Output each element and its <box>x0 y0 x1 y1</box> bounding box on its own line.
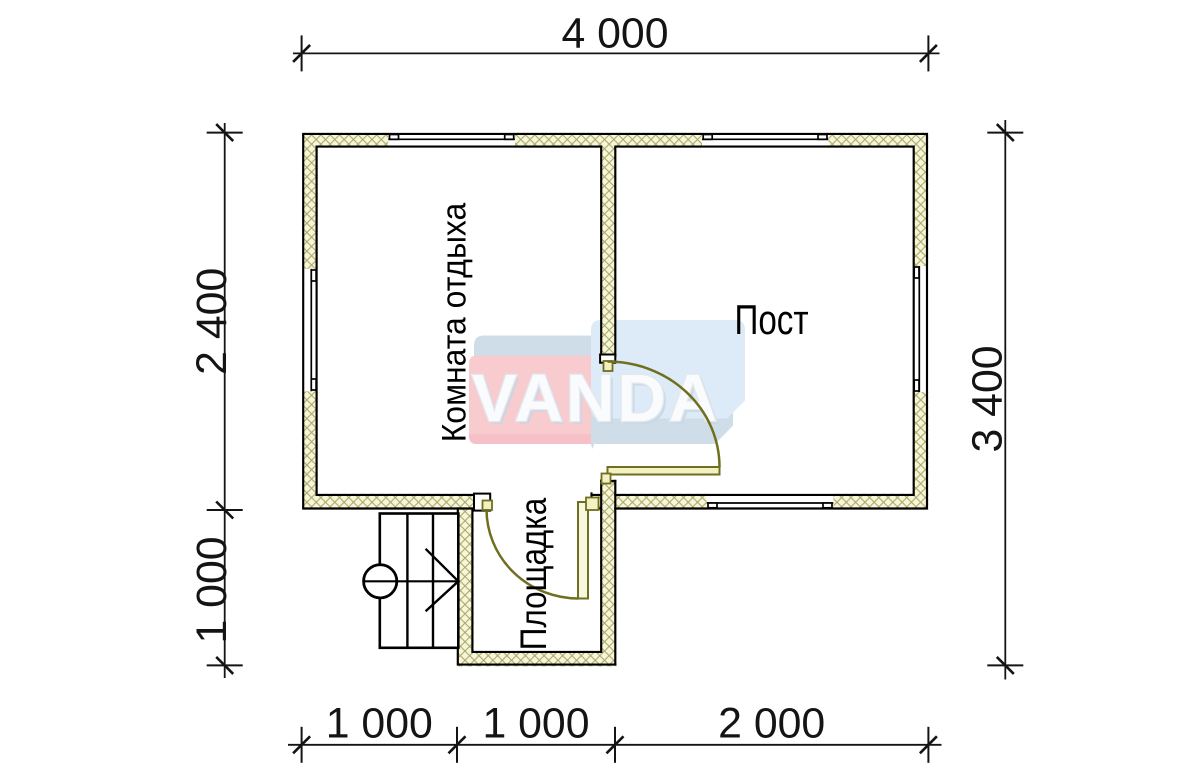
svg-text:4 000: 4 000 <box>561 9 668 57</box>
svg-text:1 000: 1 000 <box>188 536 236 643</box>
svg-text:Площадка: Площадка <box>514 497 555 650</box>
svg-text:1 000: 1 000 <box>326 700 433 748</box>
svg-text:VANDA: VANDA <box>472 361 720 436</box>
svg-text:Комната отдыха: Комната отдыха <box>434 202 472 442</box>
svg-text:2 400: 2 400 <box>188 268 236 375</box>
svg-text:3 400: 3 400 <box>964 345 1012 452</box>
svg-text:Пост: Пост <box>735 296 809 342</box>
svg-text:2 000: 2 000 <box>718 700 825 748</box>
svg-text:1 000: 1 000 <box>482 700 589 748</box>
